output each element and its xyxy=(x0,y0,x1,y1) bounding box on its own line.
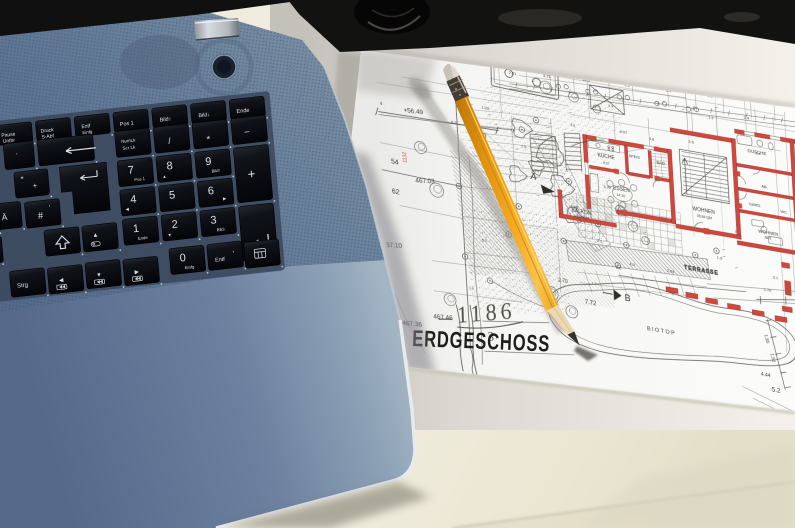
svg-text:B: B xyxy=(624,292,631,303)
svg-text:▼: ▼ xyxy=(167,232,172,237)
svg-text:Bild↑: Bild↑ xyxy=(160,116,172,123)
svg-text:6: 6 xyxy=(207,185,214,198)
svg-text:–: – xyxy=(244,126,250,137)
svg-text:9: 9 xyxy=(205,156,212,169)
svg-text:◀: ◀ xyxy=(59,278,64,284)
svg-text:1132: 1132 xyxy=(402,151,409,163)
svg-text:1186: 1186 xyxy=(454,298,518,328)
svg-text:2: 2 xyxy=(171,219,178,232)
svg-text:+: + xyxy=(247,166,256,182)
svg-text:7: 7 xyxy=(127,164,134,177)
svg-text:▲: ▲ xyxy=(92,232,98,239)
svg-text:5: 5 xyxy=(169,189,176,202)
svg-text:54: 54 xyxy=(391,158,399,166)
svg-text:467.03: 467.03 xyxy=(415,177,436,185)
svg-text:Entf: Entf xyxy=(215,257,226,264)
svg-text:Bild↓: Bild↓ xyxy=(198,112,210,119)
svg-text:4: 4 xyxy=(130,194,137,207)
svg-text:3: 3 xyxy=(210,214,217,227)
svg-text:ERDGESCHOSS: ERDGESCHOSS xyxy=(412,325,551,357)
svg-text:Bild↓: Bild↓ xyxy=(217,226,226,232)
svg-text:▶: ▶ xyxy=(134,269,139,275)
svg-text:1: 1 xyxy=(132,223,139,236)
svg-text:8: 8 xyxy=(166,160,173,173)
svg-text:0: 0 xyxy=(179,252,186,265)
svg-text:Strg: Strg xyxy=(17,282,28,289)
svg-text:▼: ▼ xyxy=(96,272,102,279)
svg-text:▲: ▲ xyxy=(162,174,167,179)
svg-text:62: 62 xyxy=(392,188,400,196)
svg-text:+: + xyxy=(32,181,37,190)
svg-text:Bild↑: Bild↑ xyxy=(211,168,220,174)
